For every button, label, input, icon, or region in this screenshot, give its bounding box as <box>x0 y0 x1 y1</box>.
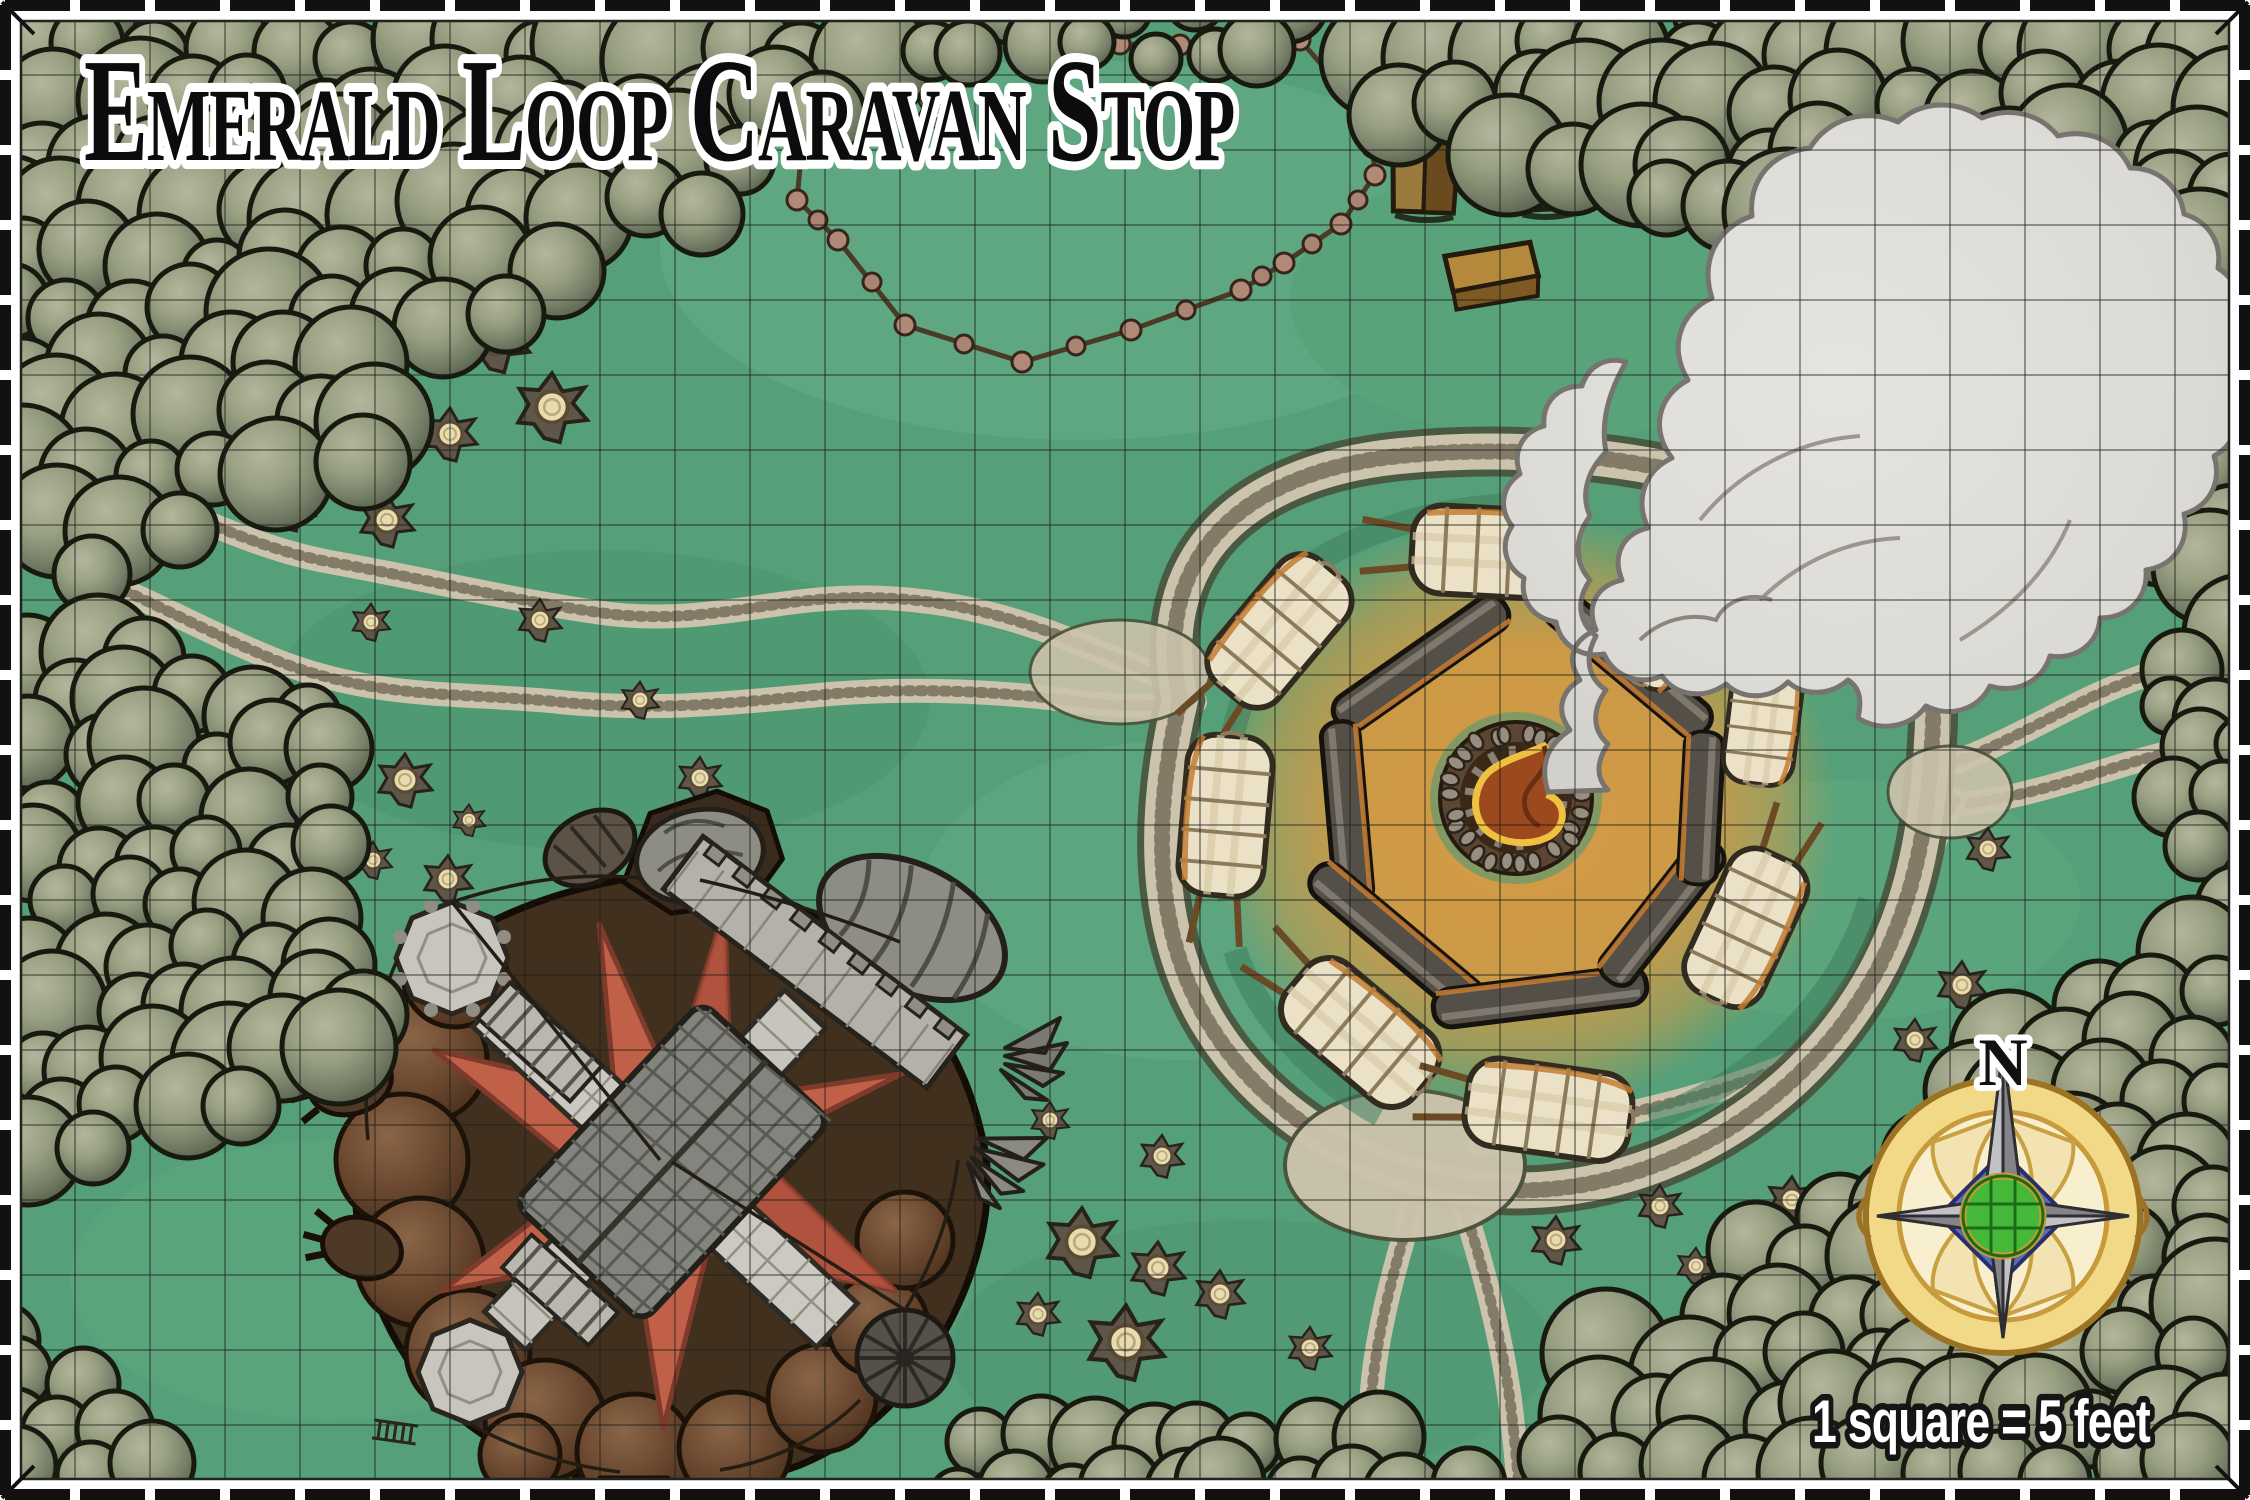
svg-text:N: N <box>1978 1024 2027 1100</box>
svg-text:1 square = 5 feet: 1 square = 5 feet <box>1812 1388 2151 1455</box>
svg-text:Emerald Loop Caravan Stop: Emerald Loop Caravan Stop <box>84 29 1234 193</box>
